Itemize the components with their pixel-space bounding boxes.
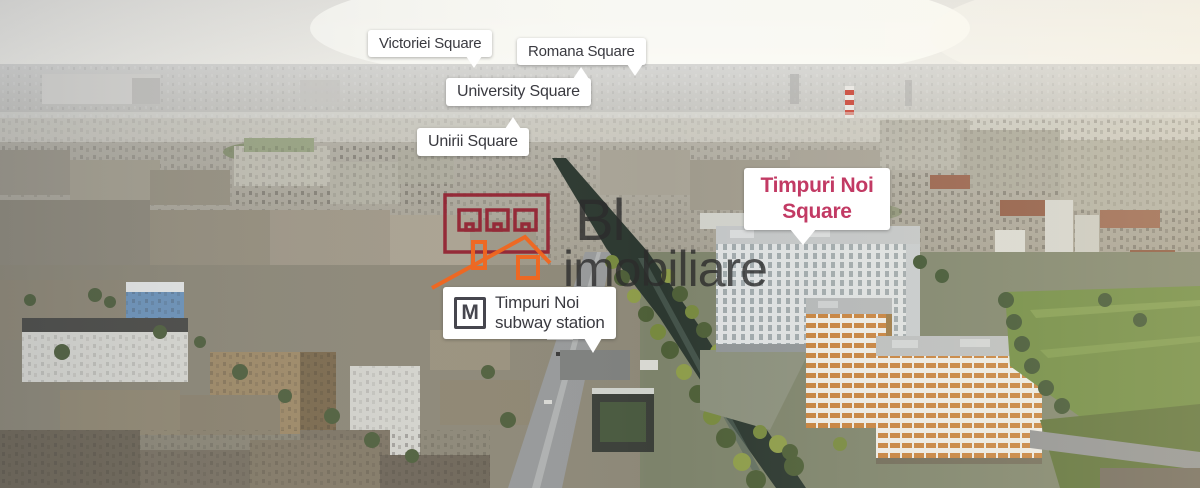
watermark-logo-icon — [430, 185, 580, 300]
callout-pointer — [466, 56, 482, 68]
metro-m-icon: M — [454, 297, 486, 329]
callout-timpuri-noi-subway-station: M Timpuri Noi subway station — [443, 287, 616, 339]
callout-label: University Square — [457, 83, 580, 100]
aerial-photo: Bl imobiliare Victoriei Square Romana Sq… — [0, 0, 1200, 488]
callout-romana-square: Romana Square — [517, 38, 646, 65]
callout-label: Romana Square — [528, 43, 635, 60]
callout-label: Unirii Square — [428, 133, 518, 150]
callout-label-line2: subway station — [495, 313, 605, 333]
callout-pointer — [790, 229, 816, 245]
callout-label-line2: Square — [754, 199, 880, 225]
callout-label: Victoriei Square — [379, 35, 481, 52]
city-aerial-backdrop — [0, 0, 1200, 488]
callout-pointer — [584, 338, 602, 353]
callout-label-line1: Timpuri Noi — [754, 173, 880, 199]
callout-label: Timpuri Noi subway station — [495, 293, 605, 333]
callout-pointer — [573, 67, 589, 79]
callout-timpuri-noi-square: Timpuri Noi Square — [744, 168, 890, 230]
callout-label-line1: Timpuri Noi — [495, 293, 605, 313]
callout-victoriei-square: Victoriei Square — [368, 30, 492, 57]
callout-university-square: University Square — [446, 78, 591, 106]
callout-pointer — [505, 117, 521, 129]
callout-unirii-square: Unirii Square — [417, 128, 529, 156]
callout-pointer — [627, 64, 643, 76]
